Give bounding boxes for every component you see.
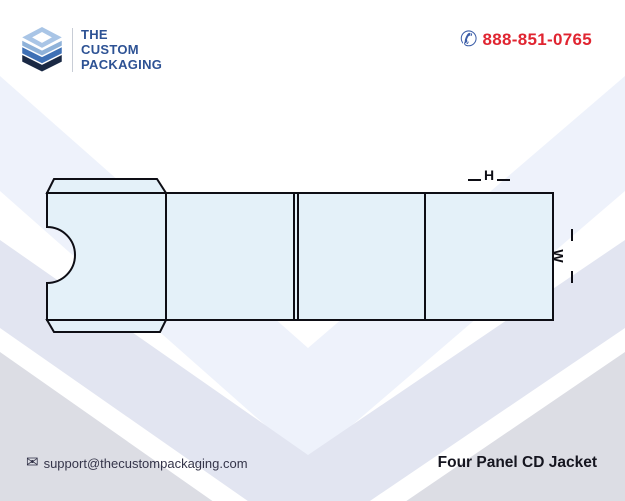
dieline-drawing — [0, 0, 625, 501]
dieline-top-flap — [47, 179, 166, 193]
dimension-tick — [571, 271, 573, 283]
email-icon: ✉ — [26, 455, 39, 471]
email-address[interactable]: support@thecustompackaging.com — [44, 456, 248, 471]
product-title: Four Panel CD Jacket — [438, 454, 597, 472]
support-email[interactable]: ✉ support@thecustompackaging.com — [26, 455, 248, 471]
page: THE CUSTOM PACKAGING ✆ 888-851-0765 H W … — [0, 0, 625, 501]
dieline-main-strip — [47, 193, 553, 320]
dimension-height-label: H — [462, 164, 516, 182]
dimension-tick — [497, 179, 510, 181]
width-label-text: W — [552, 249, 566, 262]
height-label-text: H — [484, 168, 494, 182]
dimension-tick — [571, 229, 573, 241]
dimension-width-label: W — [549, 229, 577, 283]
dimension-tick — [468, 179, 481, 181]
dieline-bottom-flap — [47, 320, 166, 332]
